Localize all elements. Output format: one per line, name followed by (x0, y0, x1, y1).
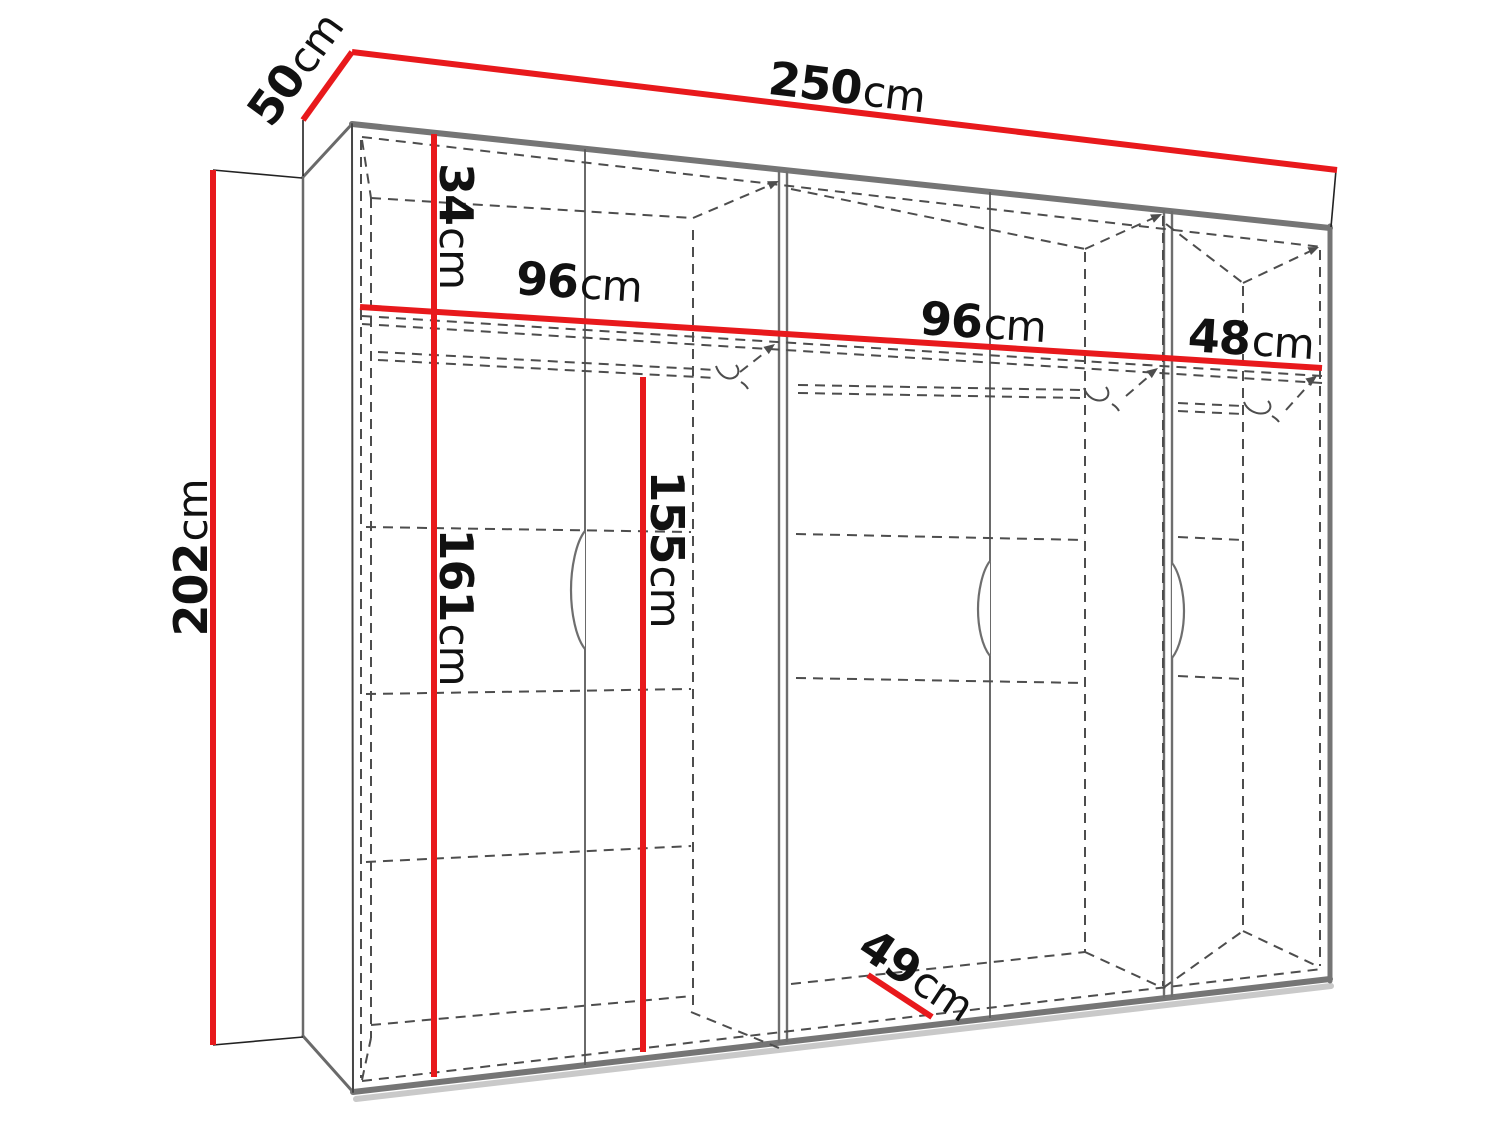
section-middle-width-label: 96cm (918, 291, 1047, 353)
rail-s1-bottom (378, 360, 716, 378)
shelf-s2-2 (796, 678, 1085, 683)
side-panel-bottom-edge (303, 1036, 353, 1092)
right-wall-top-edge (1243, 248, 1317, 283)
total-width-label: 250cm (766, 51, 928, 123)
leader-height-bottom (213, 1037, 303, 1045)
dimension-lines (213, 52, 1337, 1077)
interior-height-door-label: 155cm (640, 470, 694, 627)
rail-s3-top (1178, 403, 1243, 406)
interior-height-left-label: 161cm (429, 528, 483, 685)
depth-edge-bottom-left (362, 1038, 371, 1080)
rail-hook-s3 (1244, 401, 1270, 413)
total-height-label: 202cm (164, 479, 218, 636)
section-right-width-label: 48cm (1186, 308, 1315, 370)
rail-hook-s2-tail (1112, 404, 1119, 411)
arrowhead-top-s2 (1150, 214, 1162, 223)
back-top-edge-s3 (1166, 224, 1243, 283)
front-left-edge (352, 124, 353, 1092)
top-shelf-bottom-edge (362, 324, 1322, 383)
rail-s2-bottom (798, 393, 1082, 398)
interior-bottom-line (362, 969, 1322, 1081)
depth-edge-top-left (362, 140, 371, 198)
dimension-labels: 250cm 50cm 202cm 34cm 96cm 96cm 48cm 161… (164, 2, 1316, 1032)
rail-hook-s1 (716, 365, 738, 378)
leader-width-right (1331, 170, 1336, 227)
dimension-leaders (213, 120, 1336, 1045)
shelf-s2-1 (796, 534, 1085, 540)
door-handle-1 (571, 531, 585, 649)
arrowhead-rail-s2 (1146, 368, 1158, 378)
arrowhead-top-s3 (1308, 247, 1320, 255)
rail-s2-top (798, 385, 1082, 390)
wardrobe-dimension-diagram: 250cm 50cm 202cm 34cm 96cm 96cm 48cm 161… (0, 0, 1500, 1125)
arrowhead-rail-s3 (1305, 376, 1317, 386)
front-bottom-edge (353, 979, 1330, 1092)
shelf-s3-1 (1178, 537, 1243, 540)
rail-s3-bottom (1178, 411, 1243, 414)
leader-height-top (213, 170, 302, 178)
top-shelf-height-label: 34cm (429, 163, 483, 289)
arrowhead-top-s1 (767, 181, 779, 189)
shelf-s3-2 (1178, 676, 1243, 679)
rail-hook-s1-tail (741, 382, 748, 389)
section-left-width-label: 96cm (514, 251, 643, 313)
interior-depth-label: 49cm (849, 917, 984, 1032)
floor-shadow (356, 986, 1331, 1099)
rail-hook-s3-tail (1272, 416, 1279, 422)
door-handle-2 (978, 561, 990, 656)
partition2-bottom-edge (1085, 952, 1163, 988)
side-panel-top-edge (303, 124, 352, 177)
right-wall-bottom-edge (1243, 931, 1317, 966)
front-top-edge (352, 124, 1330, 228)
top-depth-label: 50cm (236, 2, 354, 136)
partition1-top-edge (693, 183, 775, 218)
back-top-edge-s1 (371, 198, 693, 218)
rail-hook-s2 (1084, 387, 1108, 400)
diagram-canvas: 250cm 50cm 202cm 34cm 96cm 96cm 48cm 161… (0, 0, 1500, 1125)
rail-s1-top (378, 352, 716, 370)
door-handle-3 (1172, 563, 1184, 658)
